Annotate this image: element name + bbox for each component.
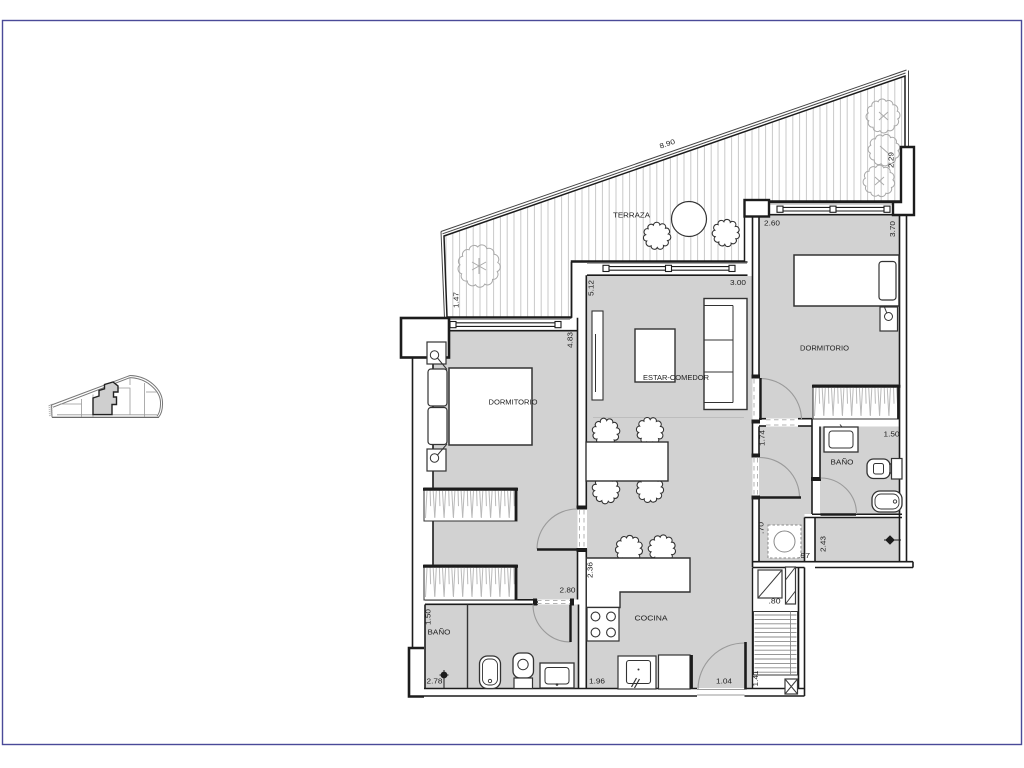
svg-text:.70: .70: [759, 522, 766, 534]
svg-text:2.36: 2.36: [588, 562, 595, 578]
svg-text:COCINA: COCINA: [635, 614, 669, 623]
svg-text:.97: .97: [798, 553, 810, 560]
svg-text:2.43: 2.43: [821, 536, 828, 552]
svg-text:2.78: 2.78: [427, 679, 443, 686]
svg-text:.80: .80: [769, 599, 781, 606]
svg-text:3.70: 3.70: [890, 221, 897, 237]
svg-text:1.04: 1.04: [716, 679, 732, 686]
svg-text:1.50: 1.50: [884, 432, 900, 439]
svg-text:DORMITORIO: DORMITORIO: [800, 344, 849, 353]
svg-text:ESTAR-COMEDOR: ESTAR-COMEDOR: [643, 373, 709, 382]
svg-text:1.74: 1.74: [760, 430, 767, 446]
svg-text:4.83: 4.83: [568, 332, 575, 348]
svg-text:2.60: 2.60: [764, 221, 780, 228]
svg-text:2.80: 2.80: [560, 588, 576, 595]
svg-text:1.41: 1.41: [753, 670, 760, 686]
svg-text:BAÑO: BAÑO: [428, 628, 451, 637]
svg-text:BAÑO: BAÑO: [831, 458, 854, 467]
svg-text:1.50: 1.50: [426, 609, 433, 625]
svg-text:DORMITORIO: DORMITORIO: [489, 398, 538, 407]
svg-text:2.29: 2.29: [889, 152, 896, 168]
svg-text:3.00: 3.00: [730, 280, 746, 287]
svg-text:1.96: 1.96: [589, 679, 605, 686]
svg-text:5.12: 5.12: [589, 280, 596, 296]
svg-text:TERRAZA: TERRAZA: [613, 211, 651, 220]
svg-text:1.47: 1.47: [454, 292, 461, 308]
